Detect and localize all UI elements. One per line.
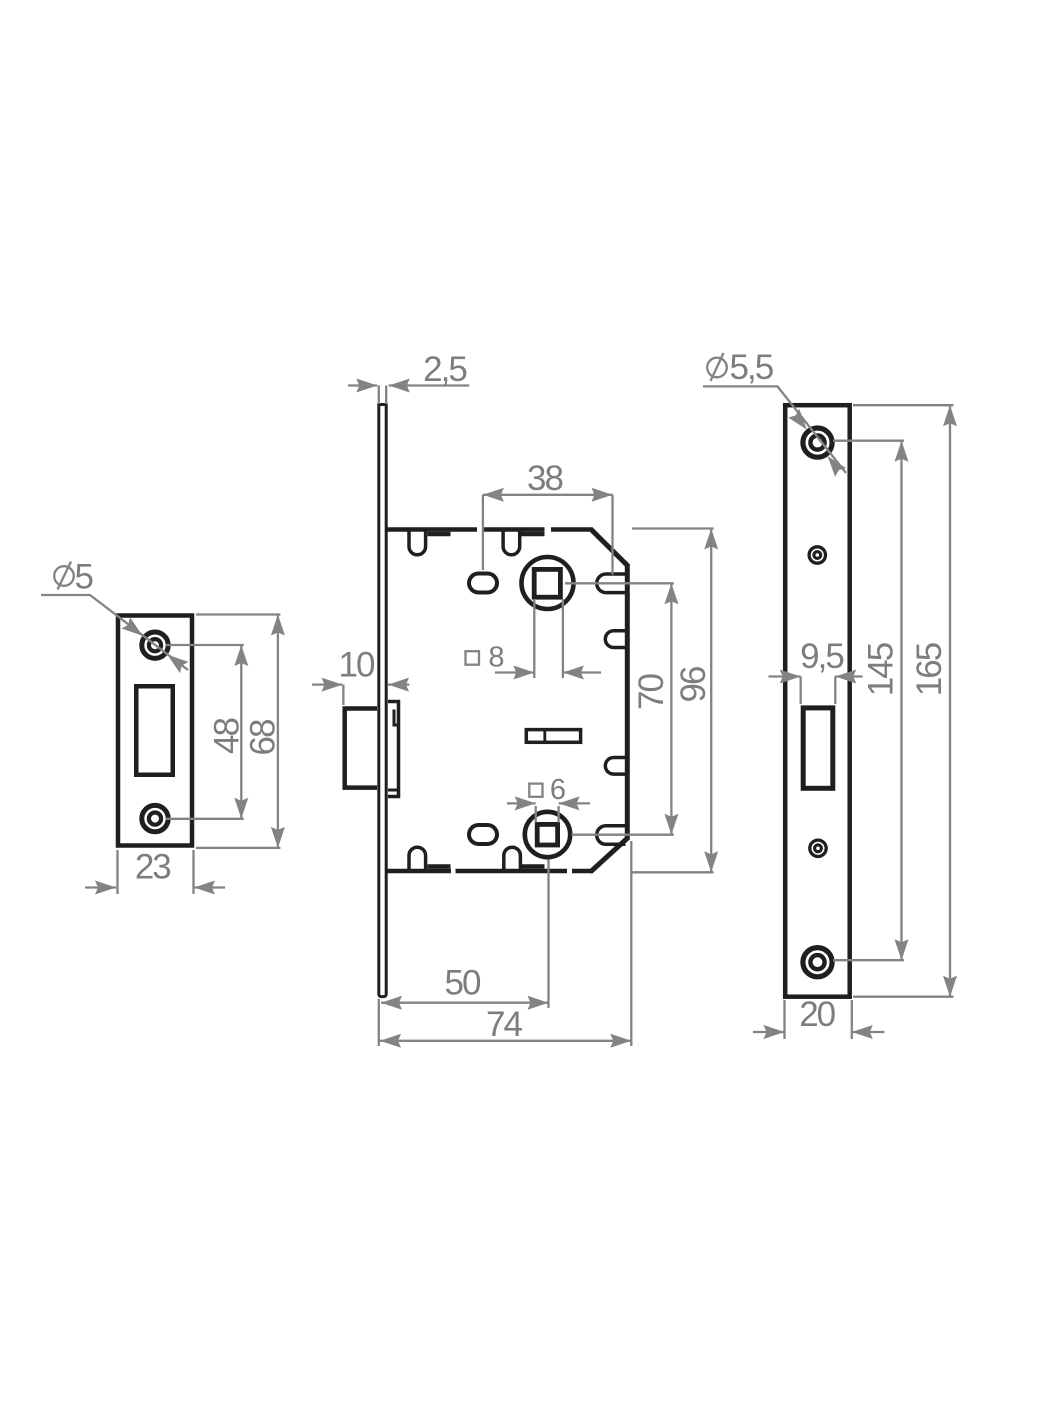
svg-text:5: 5	[75, 558, 93, 597]
svg-text:20: 20	[799, 995, 835, 1034]
svg-text:10: 10	[339, 646, 375, 685]
svg-text:70: 70	[632, 674, 671, 710]
svg-text:2,5: 2,5	[423, 350, 466, 389]
svg-text:6: 6	[550, 774, 565, 806]
svg-text:5,5: 5,5	[730, 348, 773, 387]
svg-text:145: 145	[862, 643, 901, 696]
svg-text:68: 68	[244, 720, 283, 755]
svg-text:8: 8	[488, 642, 503, 674]
svg-text:38: 38	[527, 459, 562, 498]
svg-text:96: 96	[674, 667, 713, 702]
svg-text:50: 50	[445, 964, 481, 1003]
svg-text:74: 74	[486, 1005, 522, 1044]
svg-text:9,5: 9,5	[800, 637, 843, 676]
svg-text:23: 23	[135, 848, 170, 887]
svg-text:165: 165	[910, 643, 949, 696]
